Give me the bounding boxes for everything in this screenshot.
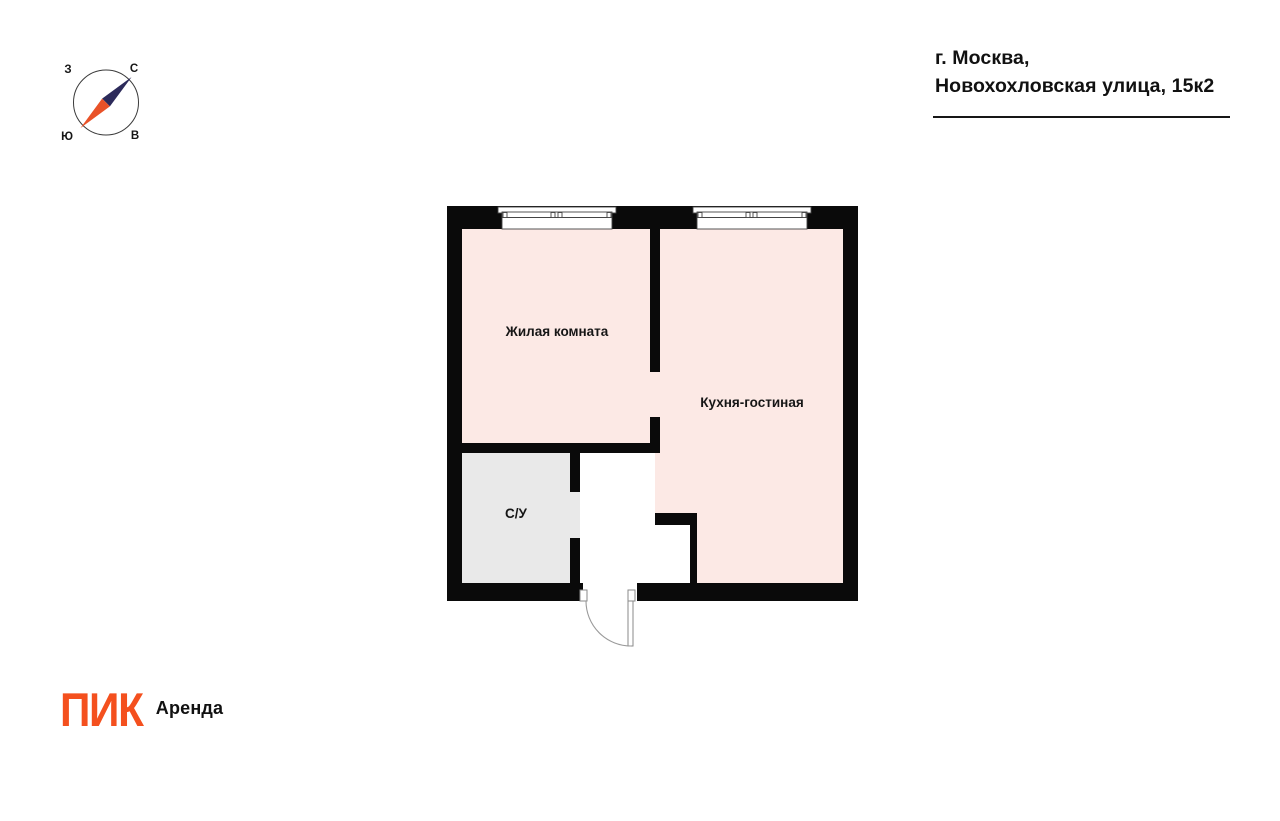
pik-logo: ПИК [60, 690, 143, 730]
floorplan-page: З С Ю В г. Москва, Новохохловская улица,… [0, 0, 1280, 821]
compass-north-label: С [130, 63, 138, 75]
brand-logo: ПИК Аренда [60, 690, 223, 730]
address-street: Новохохловская улица, 15к2 [935, 72, 1235, 100]
compass-south-label: Ю [61, 131, 73, 143]
address-divider [933, 116, 1230, 118]
address-city: г. Москва, [935, 44, 1235, 72]
room-label-living: Жилая комната [505, 324, 609, 339]
compass-rose: З С Ю В [58, 56, 154, 152]
room-label-kitchen: Кухня-гостиная [700, 395, 803, 410]
address-block: г. Москва, Новохохловская улица, 15к2 [935, 44, 1235, 100]
compass-east-label: В [131, 130, 139, 142]
window-right-icon [693, 207, 811, 229]
entrance-door-icon [580, 590, 635, 646]
room-living [462, 227, 658, 453]
floorplan-drawing: Жилая комната Кухня-гостиная С/У [440, 195, 870, 655]
pik-logo-suffix: Аренда [156, 699, 224, 717]
window-left-icon [498, 207, 616, 229]
compass-west-label: З [64, 64, 71, 76]
room-label-bathroom: С/У [505, 506, 528, 521]
